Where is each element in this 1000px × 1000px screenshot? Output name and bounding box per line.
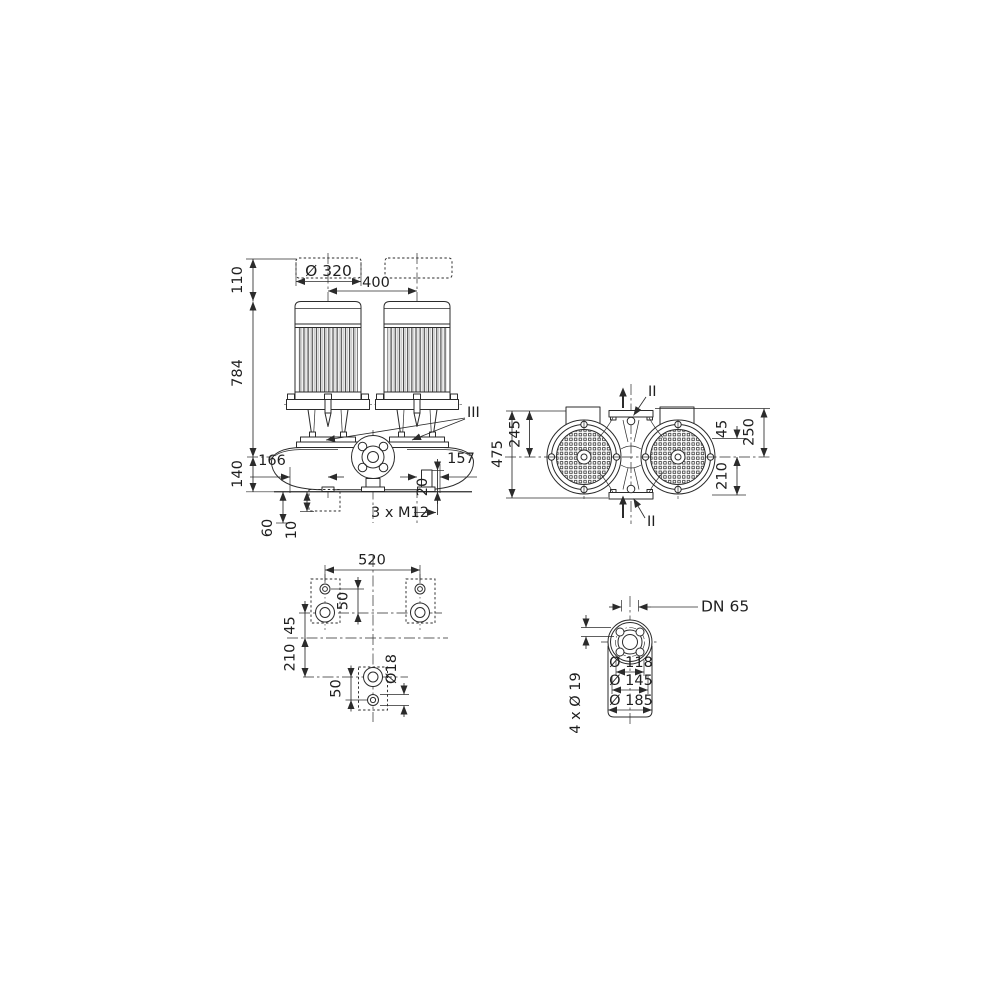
flange-bolt: [288, 394, 295, 400]
anchor-hole-small: [320, 584, 330, 594]
dimension-245: 245: [508, 411, 530, 457]
pump-dimensional-drawing: 110 784 140 Ø 320 400: [0, 0, 1000, 1000]
dim-label: 157: [447, 451, 475, 467]
dimension-210: 210: [283, 638, 306, 677]
dim-label: 245: [508, 420, 524, 448]
dimension-145: Ø 145: [609, 673, 653, 694]
dim-label: 50: [329, 679, 345, 697]
motor-cap: [384, 302, 450, 325]
flange-bolt: [451, 394, 458, 400]
dim-label: 60: [260, 519, 276, 537]
flange-view: DN 65 Ø 118 Ø 145 Ø 185 4 x Ø 19: [568, 596, 749, 734]
dimension-784: 784: [230, 302, 253, 458]
dimension-210: 210: [712, 457, 746, 495]
dimension-250: 250: [742, 409, 765, 458]
dimension-50-upper: 50: [331, 577, 364, 625]
pipe-flange: [609, 411, 653, 418]
dim-label: 50: [336, 592, 352, 610]
dimension-520: 520: [325, 553, 420, 584]
flange-bolt: [325, 394, 332, 400]
dim-label: 20: [415, 478, 431, 496]
plan-view: II II 475 245 45: [490, 384, 770, 530]
optional-connection-outline: [309, 490, 340, 512]
anchor-hole-small: [368, 695, 379, 706]
pump-bracket: [297, 442, 360, 448]
dim-label: 140: [230, 460, 246, 488]
anchor-hole-large: [316, 603, 335, 622]
dim-label: 166: [258, 453, 286, 469]
pipe-flange: [609, 493, 653, 500]
dim-label: 784: [230, 359, 246, 387]
fan-hub: [577, 450, 591, 464]
callout-label: II: [647, 514, 656, 530]
dim-label: 4 x Ø 19: [568, 672, 584, 734]
flange-bolt: [414, 394, 421, 400]
motor-left: [287, 302, 370, 448]
anchor-hole-small: [415, 584, 425, 594]
dim-label: DN 65: [701, 598, 749, 616]
motor-cooling-fins: [387, 328, 447, 393]
vent-plug: [399, 432, 405, 437]
dim-label: 110: [230, 266, 246, 294]
dim-label: 475: [490, 440, 506, 468]
pump-bracket: [386, 442, 449, 448]
dimension-185: Ø 185: [608, 693, 653, 710]
flow-arrow-top: [619, 388, 627, 409]
flange-bolt: [362, 394, 369, 400]
foundation-view: 520 50 45 210: [283, 553, 449, 723]
dim-label: Ø 145: [609, 673, 653, 689]
fan-hub: [671, 450, 685, 464]
center-connection-flange: [352, 436, 395, 479]
drawing-canvas: 110 784 140 Ø 320 400: [0, 0, 1000, 1000]
dimension-110: 110: [230, 259, 253, 301]
dim-label: 45: [715, 420, 731, 438]
callout-II-bottom: II: [634, 499, 656, 531]
clearance-envelope-right: [385, 258, 452, 278]
vent-plug: [310, 432, 316, 437]
flange-bolt: [627, 417, 635, 425]
shaft-coupling: [414, 400, 420, 414]
callout-label: III: [467, 405, 480, 421]
dim-label: Ø18: [384, 654, 400, 684]
dim-label: Ø 320: [305, 262, 352, 280]
motor-cooling-fins: [298, 328, 358, 393]
shaft-coupling: [325, 400, 331, 414]
dim-label: 520: [358, 553, 386, 569]
dimension-10: 10: [284, 492, 314, 539]
dimension-320: Ø 320: [296, 262, 361, 286]
dim-label: Ø 118: [609, 655, 653, 671]
note-label: 3 x M12: [371, 505, 429, 521]
flange-bolt: [627, 485, 635, 493]
flange-bolt: [377, 394, 384, 400]
dim-label: 400: [362, 275, 390, 291]
dimension-bolt-holes: 4 x Ø 19: [568, 615, 614, 734]
vent-plug: [341, 432, 347, 437]
motor-cap: [295, 302, 361, 325]
dim-label: 45: [283, 616, 299, 634]
arrow-head: [619, 388, 627, 397]
dimension-45: 45: [283, 601, 306, 650]
dim-label: Ø 185: [609, 693, 653, 709]
dim-label: 210: [715, 462, 731, 490]
anchor-hole-large: [411, 603, 430, 622]
center-foot: [366, 479, 380, 488]
dimension-140: 140: [230, 457, 253, 492]
dimension-50-lower: 50: [329, 666, 368, 712]
dim-label: 10: [284, 521, 300, 539]
dim-label: 210: [283, 644, 299, 672]
callout-label: II: [648, 384, 657, 400]
bolt-note: 3 x M12: [371, 505, 436, 521]
foundation-dimensions: 520 50 45 210: [283, 553, 421, 718]
dimension-hole-diameter: Ø18: [380, 654, 409, 717]
anchor-hole-large: [364, 668, 383, 687]
front-view: 110 784 140 Ø 320 400: [230, 253, 480, 539]
fan-cover-left: [547, 407, 621, 494]
dim-label: 250: [742, 418, 758, 446]
